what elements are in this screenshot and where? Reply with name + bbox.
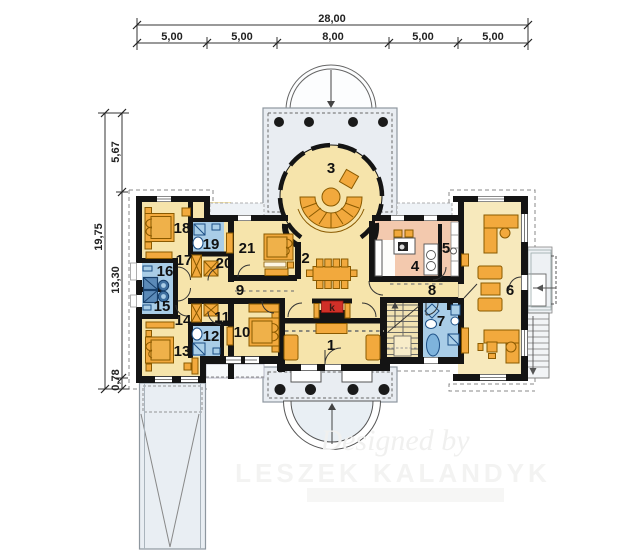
svg-text:11: 11 <box>214 309 230 326</box>
svg-text:5: 5 <box>442 240 450 257</box>
svg-text:19: 19 <box>203 236 220 253</box>
svg-text:3: 3 <box>327 160 335 177</box>
svg-text:0,78: 0,78 <box>110 369 122 390</box>
svg-text:16: 16 <box>157 263 174 280</box>
svg-text:13,30: 13,30 <box>110 266 122 294</box>
svg-text:14: 14 <box>175 312 192 329</box>
svg-text:2: 2 <box>301 250 309 267</box>
svg-text:10: 10 <box>234 324 251 341</box>
svg-text:8,00: 8,00 <box>322 31 343 43</box>
svg-text:4: 4 <box>411 258 420 275</box>
svg-text:5,00: 5,00 <box>412 31 433 43</box>
svg-text:12: 12 <box>203 328 220 345</box>
svg-text:15: 15 <box>154 298 171 315</box>
svg-text:Designed by: Designed by <box>319 424 470 457</box>
svg-text:5,00: 5,00 <box>482 31 503 43</box>
svg-text:5,00: 5,00 <box>231 31 252 43</box>
svg-text:17: 17 <box>176 252 193 269</box>
svg-text:LESZEK KALANDYK: LESZEK KALANDYK <box>235 458 551 488</box>
svg-text:5,00: 5,00 <box>161 31 182 43</box>
svg-text:28,00: 28,00 <box>318 13 346 25</box>
svg-text:5,67: 5,67 <box>110 141 122 162</box>
svg-text:21: 21 <box>239 240 256 257</box>
svg-text:18: 18 <box>174 220 191 237</box>
svg-text:1: 1 <box>327 337 335 354</box>
svg-text:8: 8 <box>428 282 436 299</box>
svg-text:6: 6 <box>506 282 514 299</box>
svg-text:13: 13 <box>174 343 191 360</box>
svg-text:k: k <box>329 302 335 314</box>
svg-text:7: 7 <box>437 313 445 330</box>
svg-text:9: 9 <box>236 282 244 299</box>
svg-text:20: 20 <box>216 255 233 272</box>
svg-text:19,75: 19,75 <box>93 223 105 251</box>
